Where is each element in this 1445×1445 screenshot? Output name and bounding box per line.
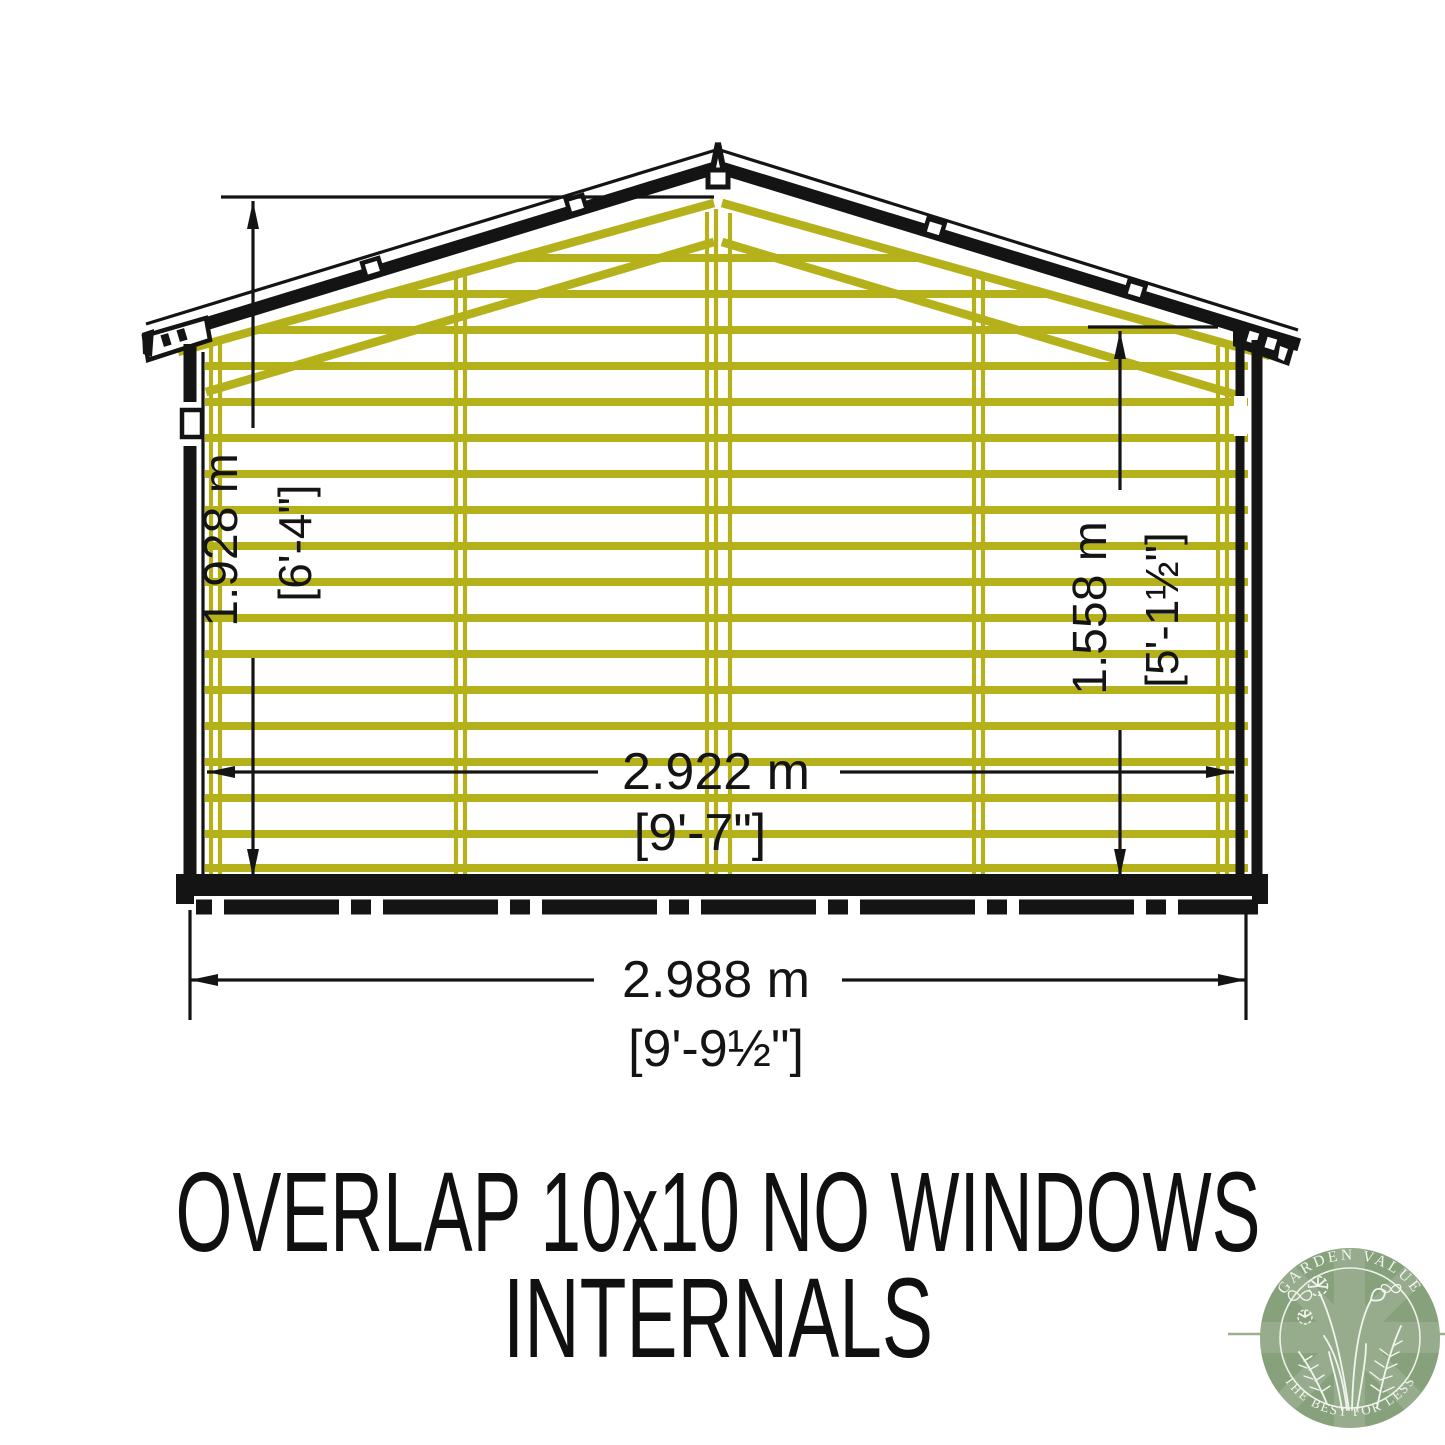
dim-eaves-metric: 1.558 m <box>1064 521 1117 694</box>
garden-value-logo: GARDEN VALUE THE BEST FOR LESS <box>1228 1246 1445 1430</box>
floor-step-left <box>176 874 194 904</box>
ridge-cleat <box>708 170 728 187</box>
dim-eaves-imperial: [5'-1½"] <box>1136 532 1188 688</box>
roof-cleat <box>924 219 945 238</box>
roof-felt-edge <box>720 150 1298 330</box>
roof-cleat <box>362 258 383 277</box>
caption-line2: INTERNALS <box>503 1255 933 1381</box>
dim-internal-metric: 2.922 m <box>622 743 810 801</box>
left-wall-bracket <box>182 410 202 437</box>
floor-deck <box>184 874 1266 896</box>
dim-internal-imperial: [9'-7"] <box>634 804 766 862</box>
right-wall-joint-gap <box>1234 396 1247 436</box>
fascia-left <box>144 318 210 360</box>
roof-cleat <box>1125 281 1146 300</box>
product-diagram-page: 1.928 m [6'-4"] 1.558 m [5'-1½"] 2.922 m… <box>0 0 1445 1445</box>
dim-ridge-metric: 1.928 m <box>195 453 248 626</box>
fascia-left-end <box>142 329 154 357</box>
dim-overall-metric: 2.988 m <box>622 951 810 1009</box>
caption: OVERLAP 10x10 NO WINDOWS INTERNALS <box>176 1149 1261 1381</box>
dim-overall-imperial: [9'-9½"] <box>628 1020 804 1078</box>
dim-ridge-imperial: [6'-4"] <box>269 484 321 601</box>
dim-overall-width: 2.988 m [9'-9½"] <box>190 908 1246 1078</box>
shed-elevation-svg: 1.928 m [6'-4"] 1.558 m [5'-1½"] 2.922 m… <box>0 0 1445 1445</box>
floor <box>176 874 1268 907</box>
